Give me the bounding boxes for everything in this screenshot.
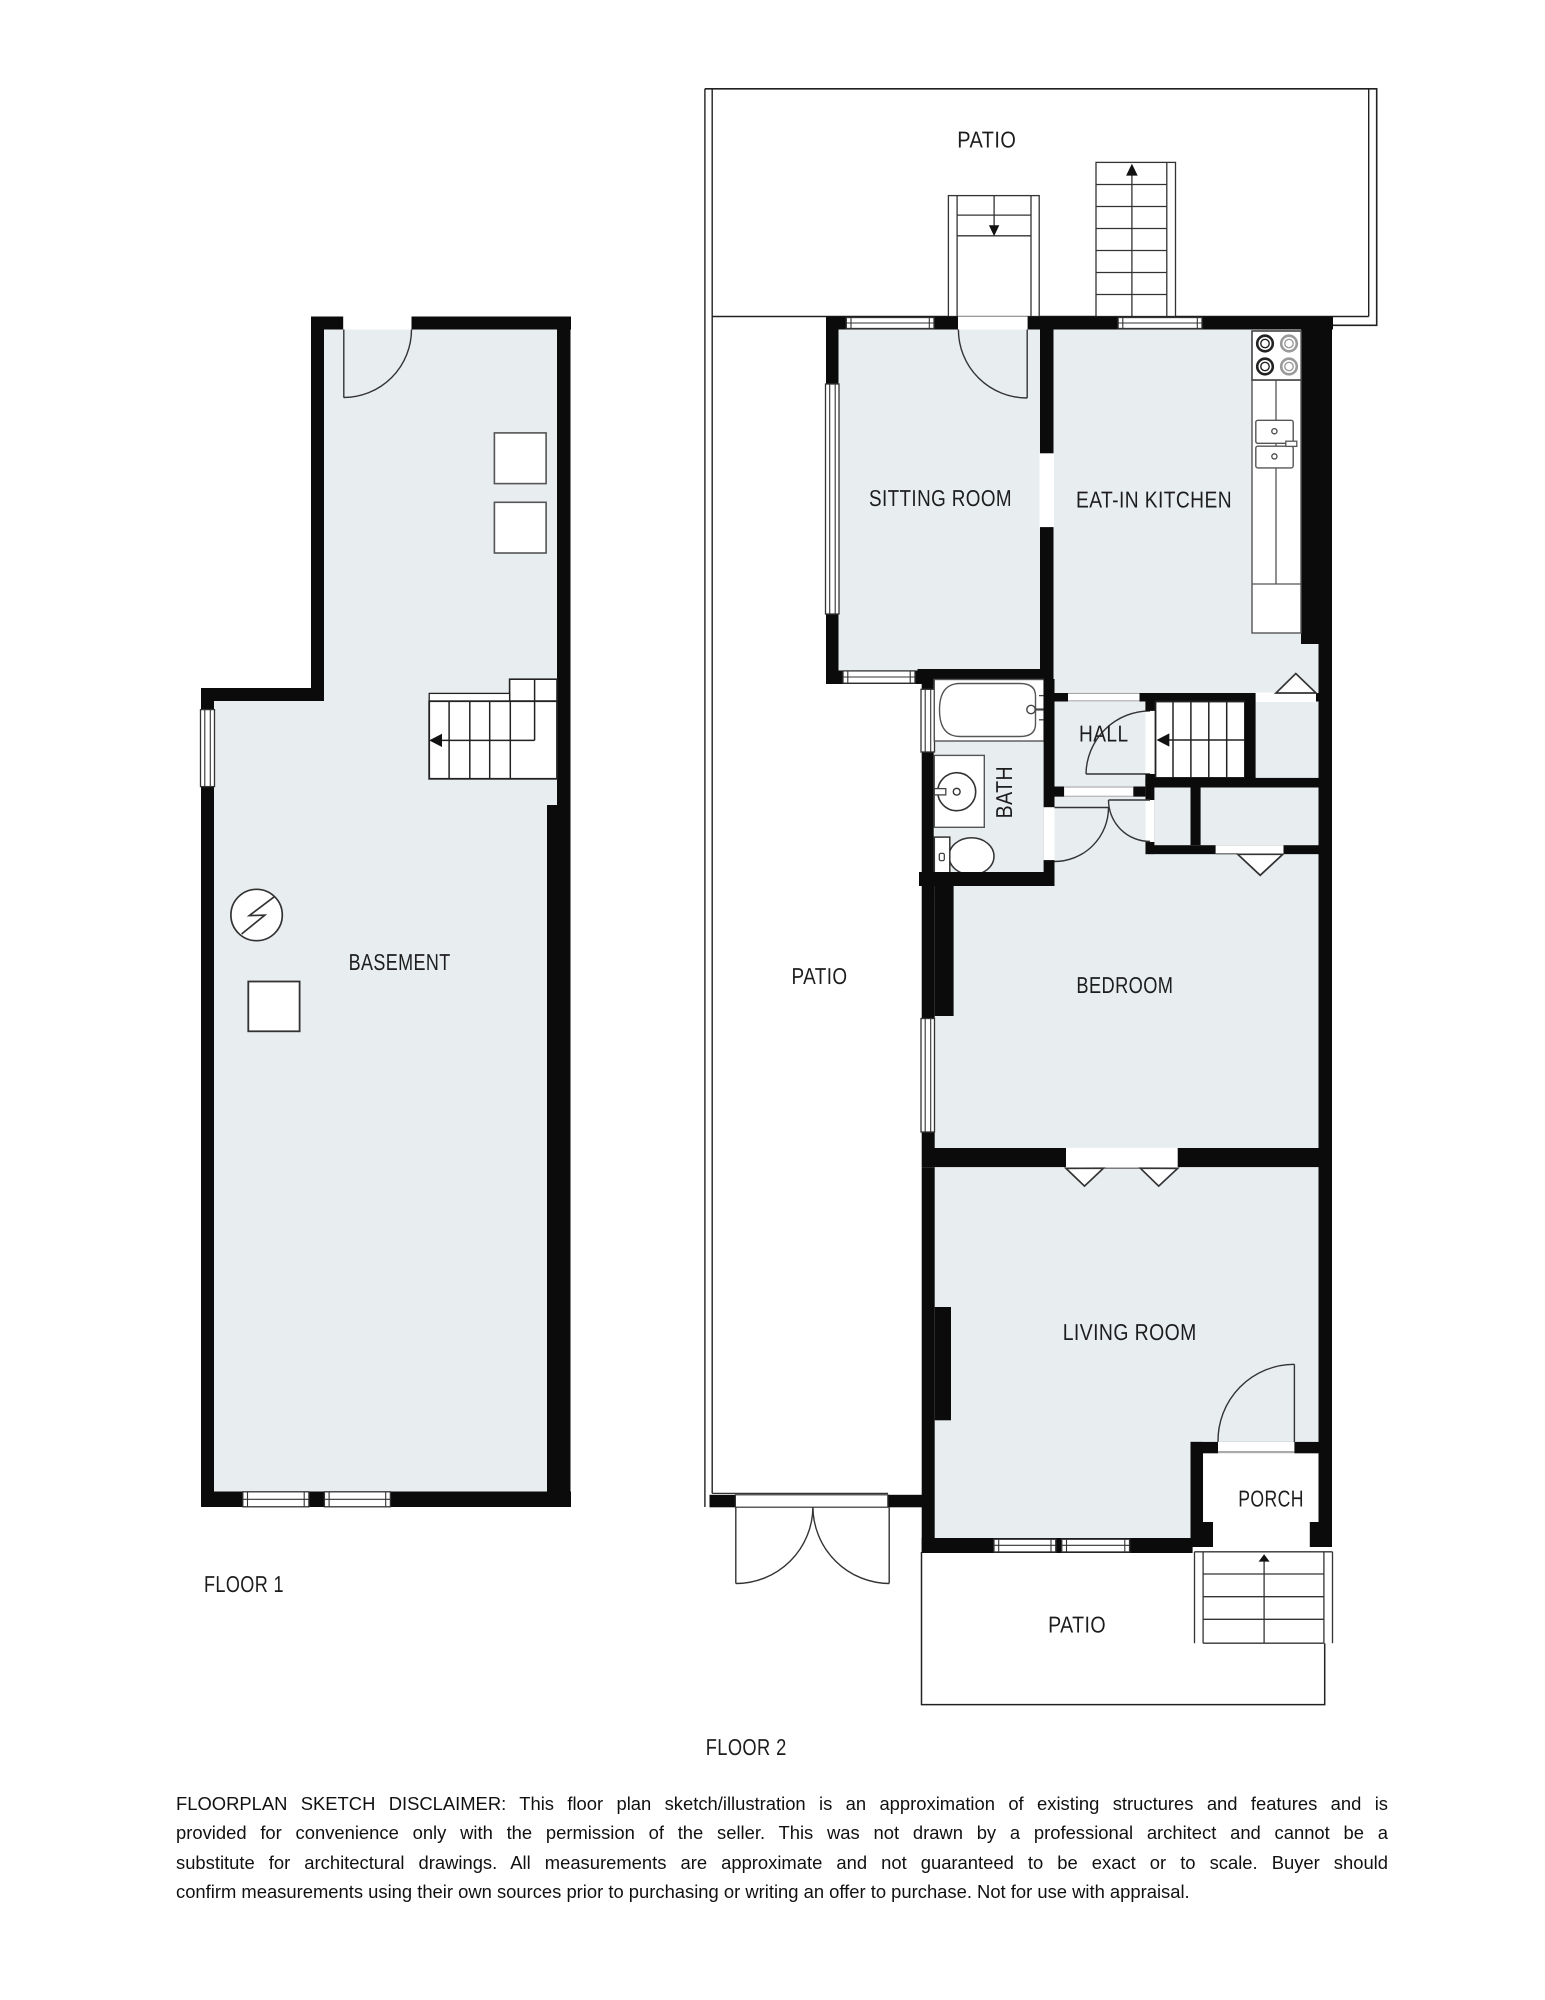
svg-text:PORCH: PORCH [1238,1486,1304,1512]
svg-text:FLOOR 2: FLOOR 2 [706,1734,787,1760]
svg-text:HALL: HALL [1079,721,1129,747]
svg-text:FLOOR 1: FLOOR 1 [204,1571,284,1597]
svg-text:PATIO: PATIO [792,963,848,989]
svg-text:PATIO: PATIO [957,127,1016,153]
svg-text:BASEMENT: BASEMENT [349,949,451,975]
svg-text:LIVING ROOM: LIVING ROOM [1063,1319,1197,1345]
svg-text:BEDROOM: BEDROOM [1076,972,1173,998]
svg-text:BATH: BATH [991,766,1017,819]
svg-text:PATIO: PATIO [1048,1612,1106,1638]
svg-text:SITTING ROOM: SITTING ROOM [869,485,1012,511]
svg-text:EAT-IN KITCHEN: EAT-IN KITCHEN [1076,487,1232,513]
